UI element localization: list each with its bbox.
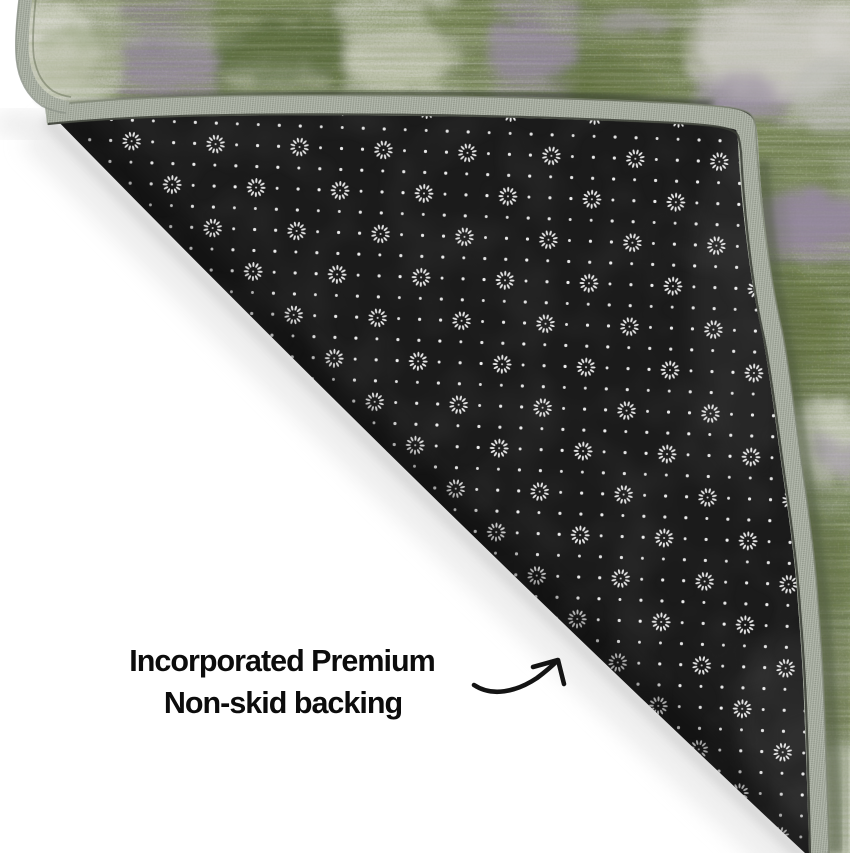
svg-text:Incorporated Premium: Incorporated Premium — [129, 644, 434, 678]
svg-text:Non-skid backing: Non-skid backing — [164, 686, 402, 720]
